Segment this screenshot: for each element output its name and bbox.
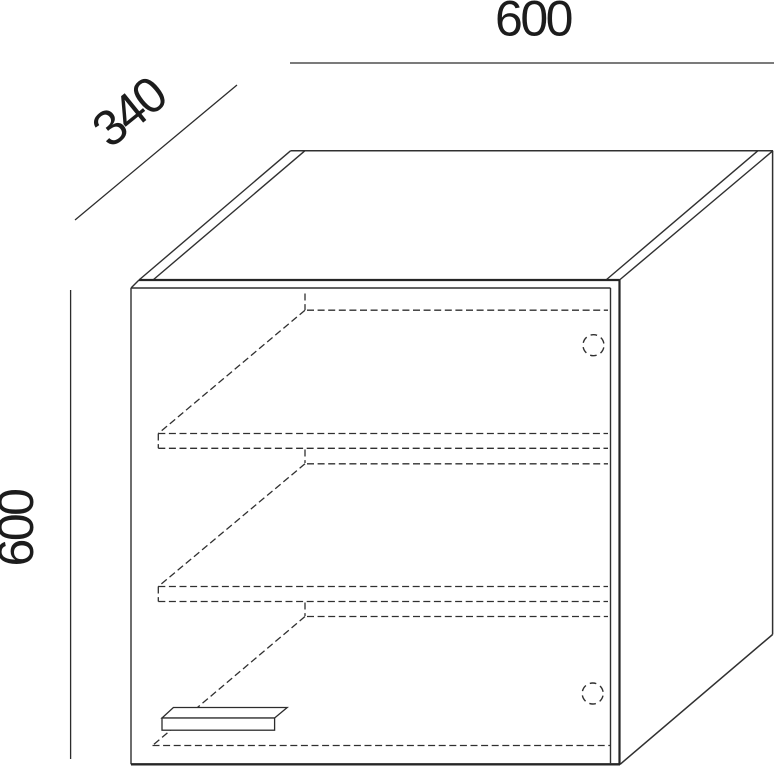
- svg-text:600: 600: [495, 0, 572, 47]
- svg-text:600: 600: [0, 490, 44, 567]
